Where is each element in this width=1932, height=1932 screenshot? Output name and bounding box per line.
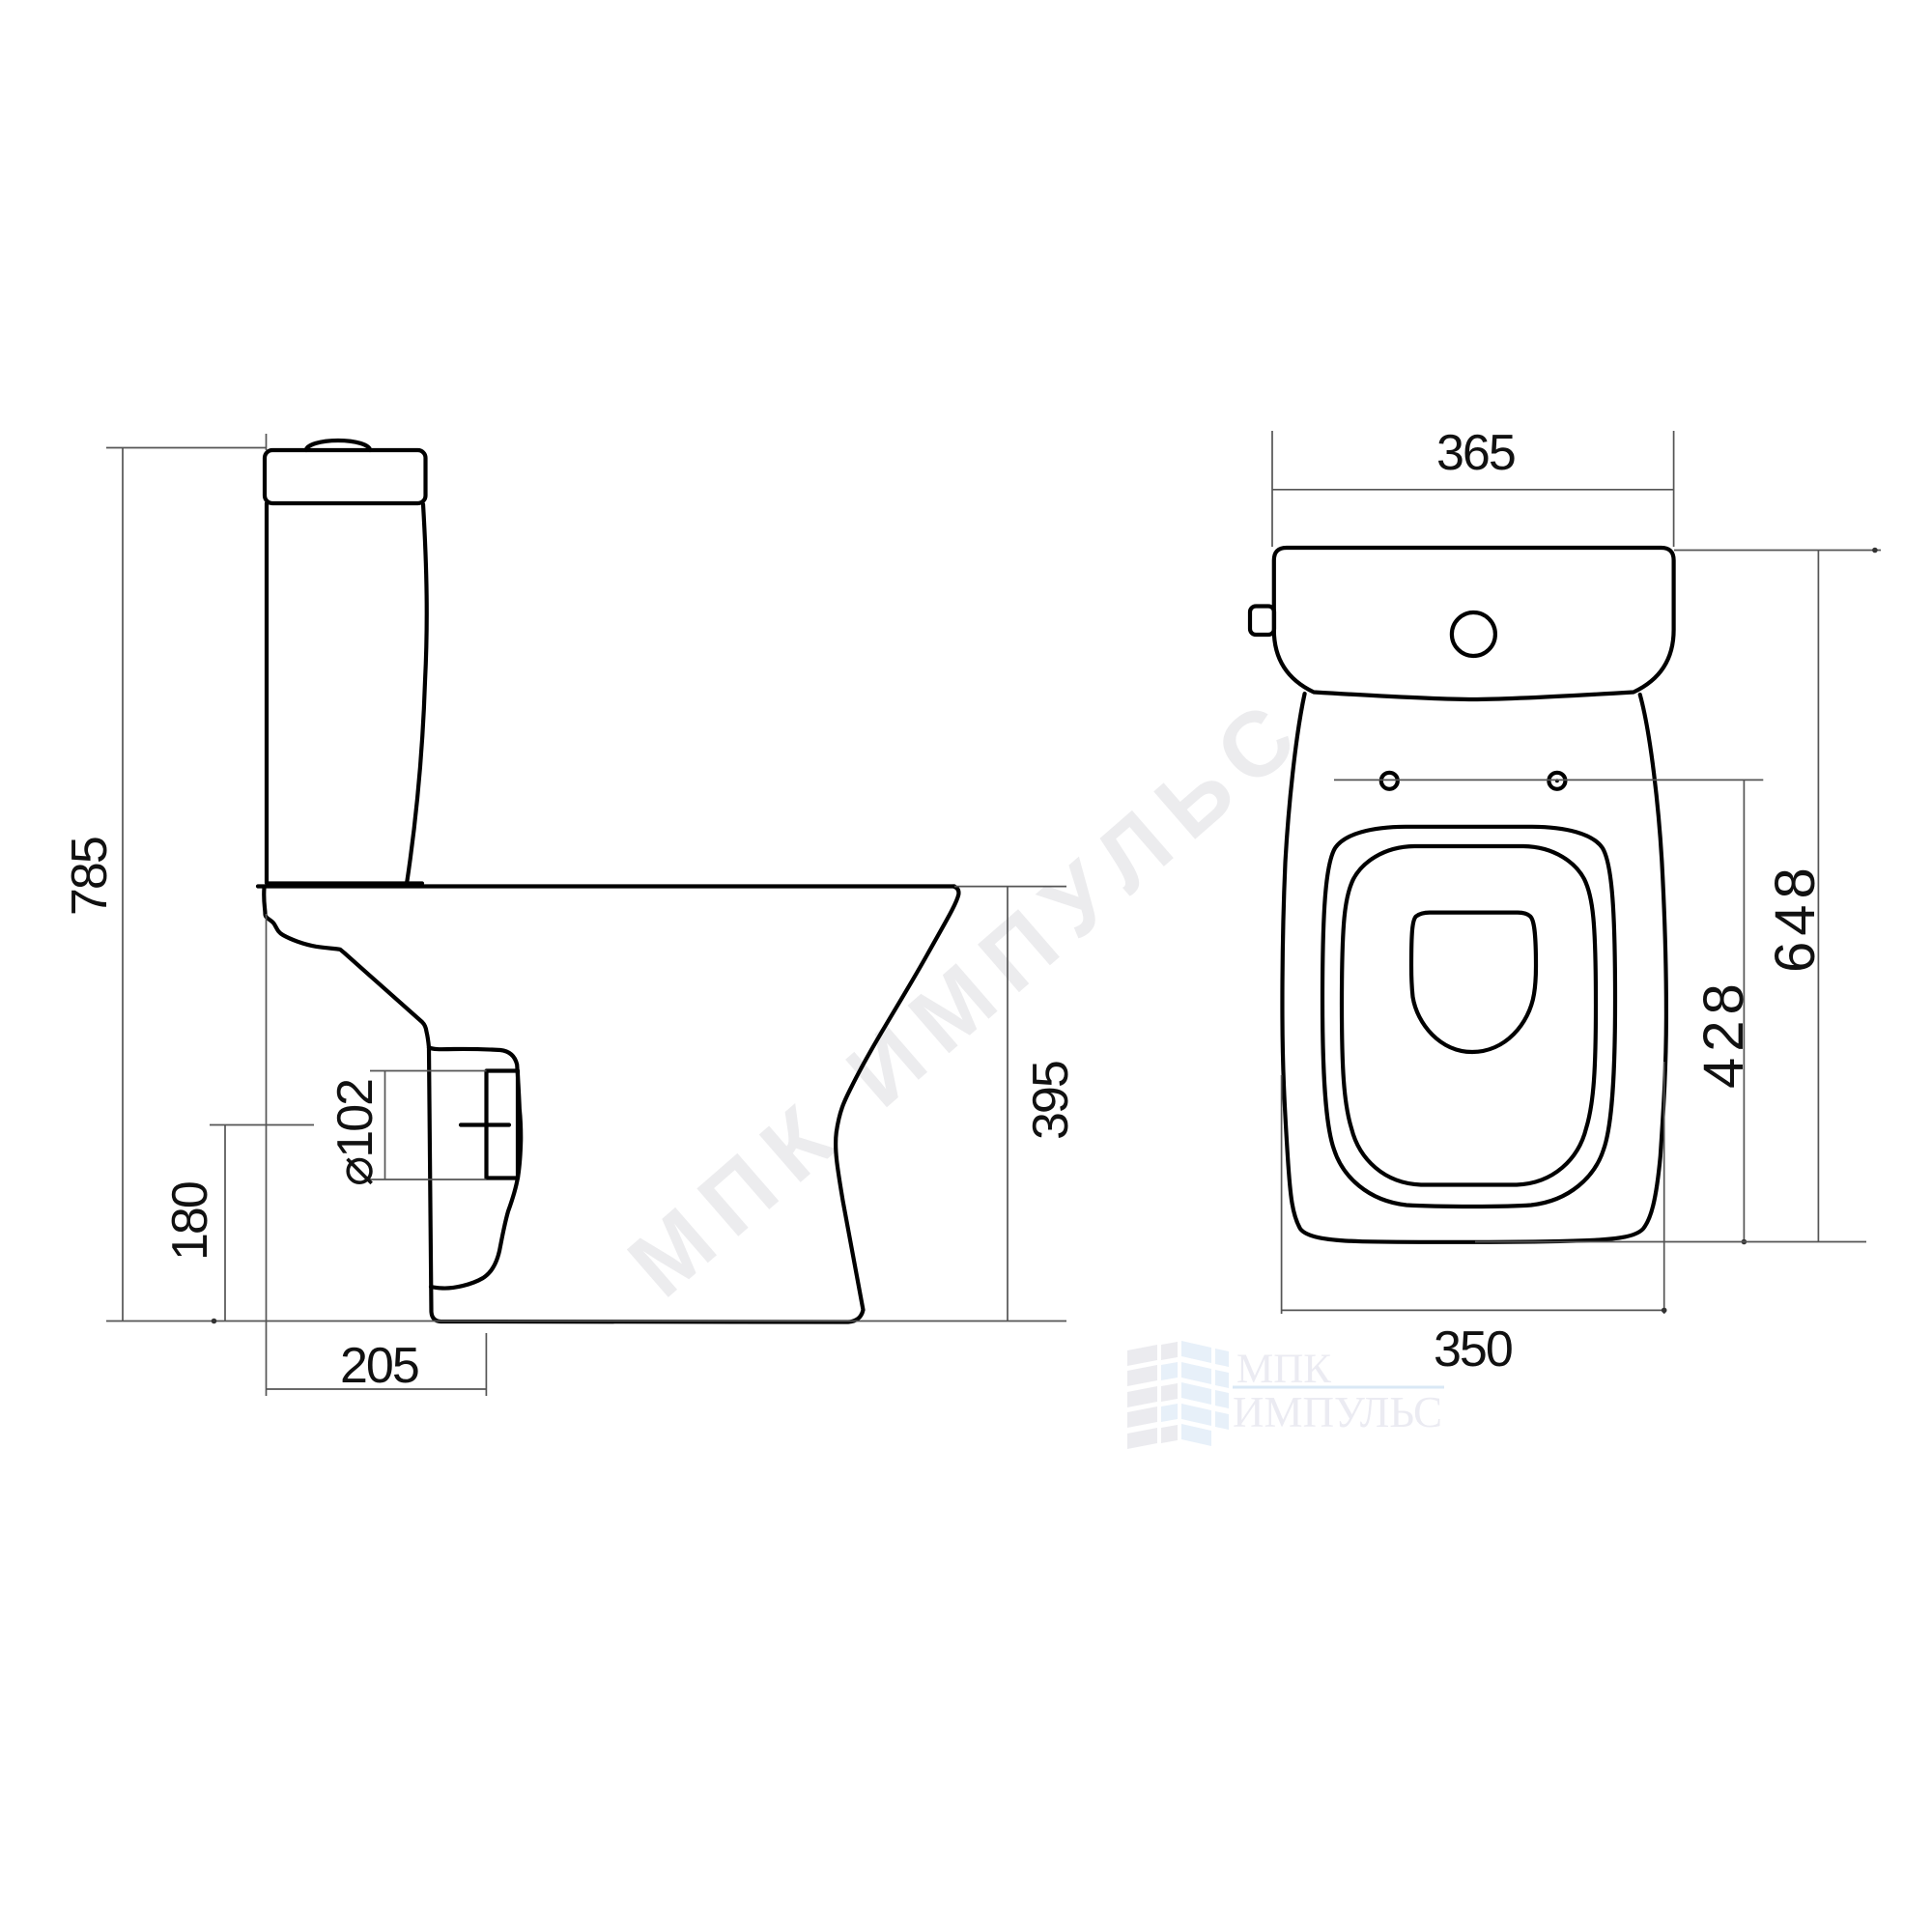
svg-text:365: 365 bbox=[1436, 425, 1515, 481]
svg-text:⌀102: ⌀102 bbox=[327, 1080, 384, 1186]
svg-text:395: 395 bbox=[1023, 1062, 1079, 1140]
svg-text:205: 205 bbox=[340, 1338, 418, 1394]
svg-text:648: 648 bbox=[1764, 862, 1827, 973]
svg-text:350: 350 bbox=[1434, 1321, 1512, 1378]
svg-text:МПК: МПК bbox=[1236, 1347, 1331, 1392]
svg-text:428: 428 bbox=[1692, 978, 1755, 1089]
svg-text:785: 785 bbox=[62, 838, 118, 916]
svg-text:180: 180 bbox=[162, 1182, 218, 1261]
svg-text:ИМПУЛЬС: ИМПУЛЬС bbox=[1233, 1388, 1442, 1436]
